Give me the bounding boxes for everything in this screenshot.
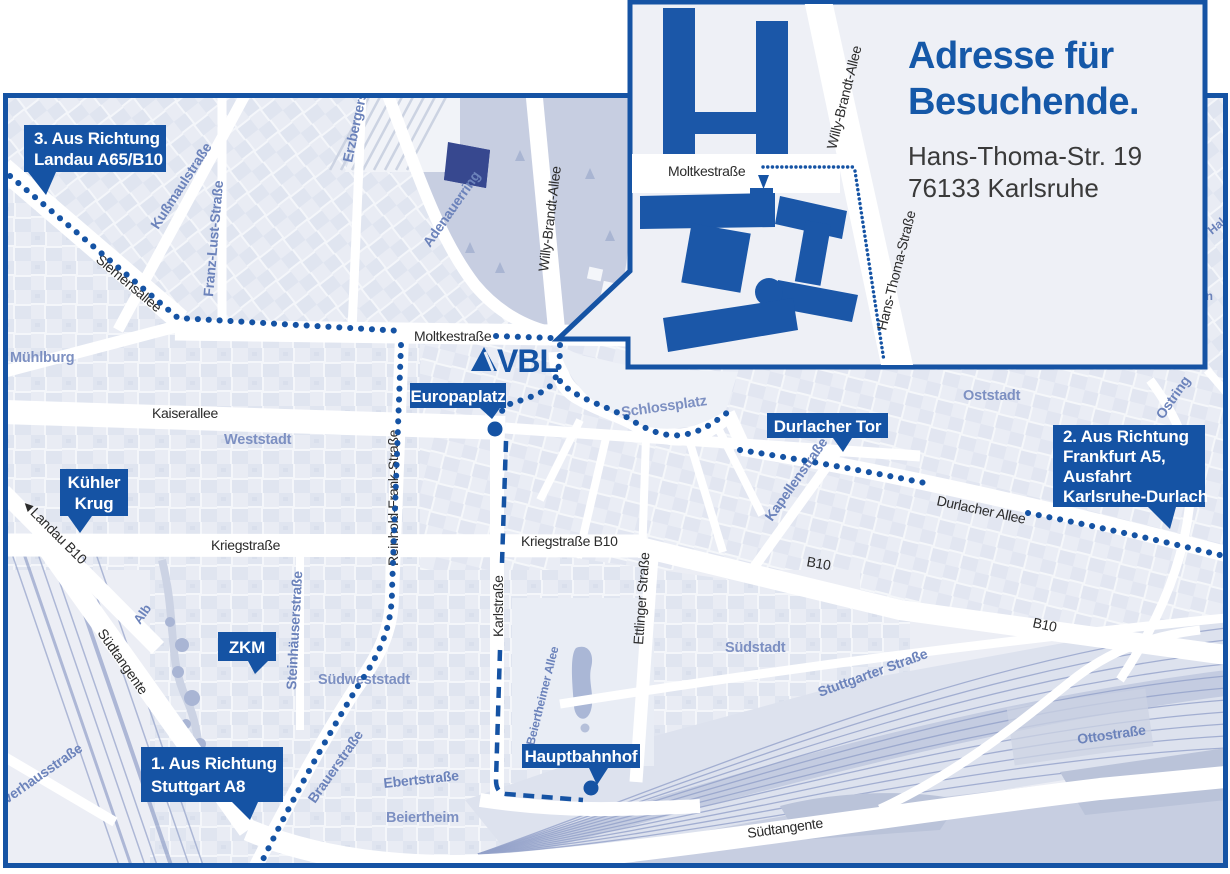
svg-text:Weststadt: Weststadt (224, 432, 292, 448)
svg-text:Karlstraße: Karlstraße (490, 575, 506, 637)
svg-text:Kühler: Kühler (68, 473, 121, 492)
svg-text:3. Aus Richtung: 3. Aus Richtung (34, 129, 160, 148)
svg-text:ZKM: ZKM (229, 638, 265, 657)
svg-text:Stuttgart A8: Stuttgart A8 (151, 777, 245, 796)
svg-text:2. Aus Richtung: 2. Aus Richtung (1063, 427, 1189, 446)
svg-text:Europaplatz: Europaplatz (410, 387, 505, 406)
svg-text:Karlsruhe-Durlach: Karlsruhe-Durlach (1063, 487, 1208, 506)
svg-text:VBL: VBL (497, 343, 558, 379)
svg-text:Moltkestraße: Moltkestraße (414, 328, 492, 344)
svg-text:Landau A65/B10: Landau A65/B10 (34, 150, 163, 169)
svg-text:Kriegstraße B10: Kriegstraße B10 (521, 533, 618, 549)
svg-text:Beiertheim: Beiertheim (386, 810, 459, 826)
svg-text:Ausfahrt: Ausfahrt (1063, 467, 1132, 486)
svg-text:Krug: Krug (75, 494, 114, 513)
svg-text:Hans-Thoma-Str. 19: Hans-Thoma-Str. 19 (908, 141, 1142, 171)
svg-text:Kriegstraße: Kriegstraße (211, 537, 281, 553)
svg-text:76133 Karlsruhe: 76133 Karlsruhe (908, 173, 1099, 203)
svg-text:Besuchende.: Besuchende. (908, 81, 1139, 123)
svg-text:Kaiserallee: Kaiserallee (152, 405, 218, 421)
svg-text:Moltkestraße: Moltkestraße (668, 163, 746, 179)
svg-text:Hauptbahnhof: Hauptbahnhof (525, 747, 638, 766)
svg-text:1. Aus Richtung: 1. Aus Richtung (151, 754, 277, 773)
svg-text:Oststadt: Oststadt (963, 388, 1021, 404)
svg-text:Mühlburg: Mühlburg (10, 350, 74, 366)
svg-text:Frankfurt A5,: Frankfurt A5, (1063, 447, 1166, 466)
svg-text:Adresse für: Adresse für (908, 35, 1114, 77)
svg-text:Durlacher Tor: Durlacher Tor (774, 417, 882, 436)
svg-text:Südstadt: Südstadt (725, 640, 786, 656)
